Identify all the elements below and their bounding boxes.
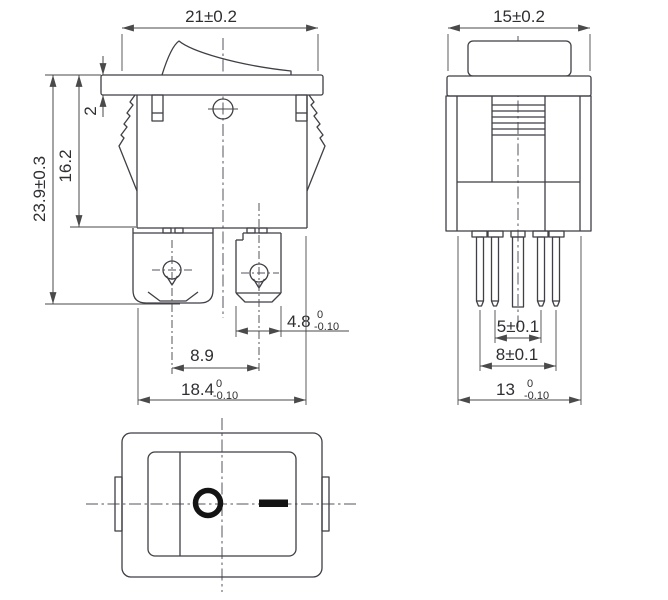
dim-label-panel-width: 21±0.2: [185, 7, 237, 26]
dim-terminal-width-tol-lower: -0.10: [314, 321, 339, 333]
dim-label-pin-pitch-inner: 5±0.1: [497, 317, 539, 336]
front-view: 21±0.2 2 16.2 23.9±0.3 4.8 0: [30, 7, 349, 405]
dim-label-side-panel-width: 15±0.2: [493, 7, 545, 26]
dim-label-terminal-width: 4.8: [287, 312, 311, 331]
side-bezel-flange: [447, 76, 591, 96]
bezel-flange: [101, 75, 323, 95]
post-left: [152, 95, 163, 121]
post-right: [296, 95, 307, 121]
drawing-canvas: 21±0.2 2 16.2 23.9±0.3 4.8 0: [0, 0, 668, 600]
dim-label-pin-pitch-outer: 8±0.1: [496, 345, 538, 364]
dim-label-bezel-thickness: 2: [81, 106, 100, 115]
dim-front-panel-width: 21±0.2: [122, 7, 318, 71]
on-symbol-icon: [259, 500, 288, 508]
technical-drawing: 21±0.2 2 16.2 23.9±0.3 4.8 0: [0, 0, 668, 600]
dim-body-depth-tol-upper: 0: [527, 378, 533, 390]
snap-wing-right: [307, 95, 325, 191]
pin-1: [477, 237, 484, 306]
dim-body-width-tol-upper: 0: [216, 378, 222, 390]
off-symbol-icon: [196, 491, 221, 516]
pin-5: [553, 237, 560, 306]
dim-terminal-width-tol-upper: 0: [317, 309, 323, 321]
pivot-circle: [208, 99, 238, 119]
dim-label-body-height: 16.2: [56, 149, 75, 182]
dim-body-depth-tol-lower: -0.10: [524, 390, 549, 402]
snap-wing-left: [119, 95, 137, 191]
pin-2: [492, 237, 499, 306]
dim-label-total-height: 23.9±0.3: [30, 156, 49, 222]
dim-terminal-pitch: 8.9: [172, 346, 259, 368]
dim-bezel-thickness: 2: [81, 56, 103, 117]
top-view: [86, 418, 358, 592]
dim-label-body-width: 18.4: [181, 380, 214, 399]
dim-label-body-depth: 13: [496, 380, 515, 399]
rocker-actuator: [162, 41, 291, 75]
dim-label-terminal-pitch: 8.9: [190, 346, 214, 365]
dim-terminal-width: 4.8 0 -0.10: [236, 306, 349, 337]
side-view: 15±0.2 5±0.1 8±0.1 13 0 -0.10: [446, 7, 591, 405]
dim-pin-pitch-inner: 5±0.1: [495, 310, 541, 343]
pin-4: [538, 237, 545, 306]
dim-body-height: 16.2: [56, 75, 136, 227]
side-rocker-top: [468, 41, 571, 76]
dim-body-width-tol-lower: -0.10: [213, 390, 238, 402]
